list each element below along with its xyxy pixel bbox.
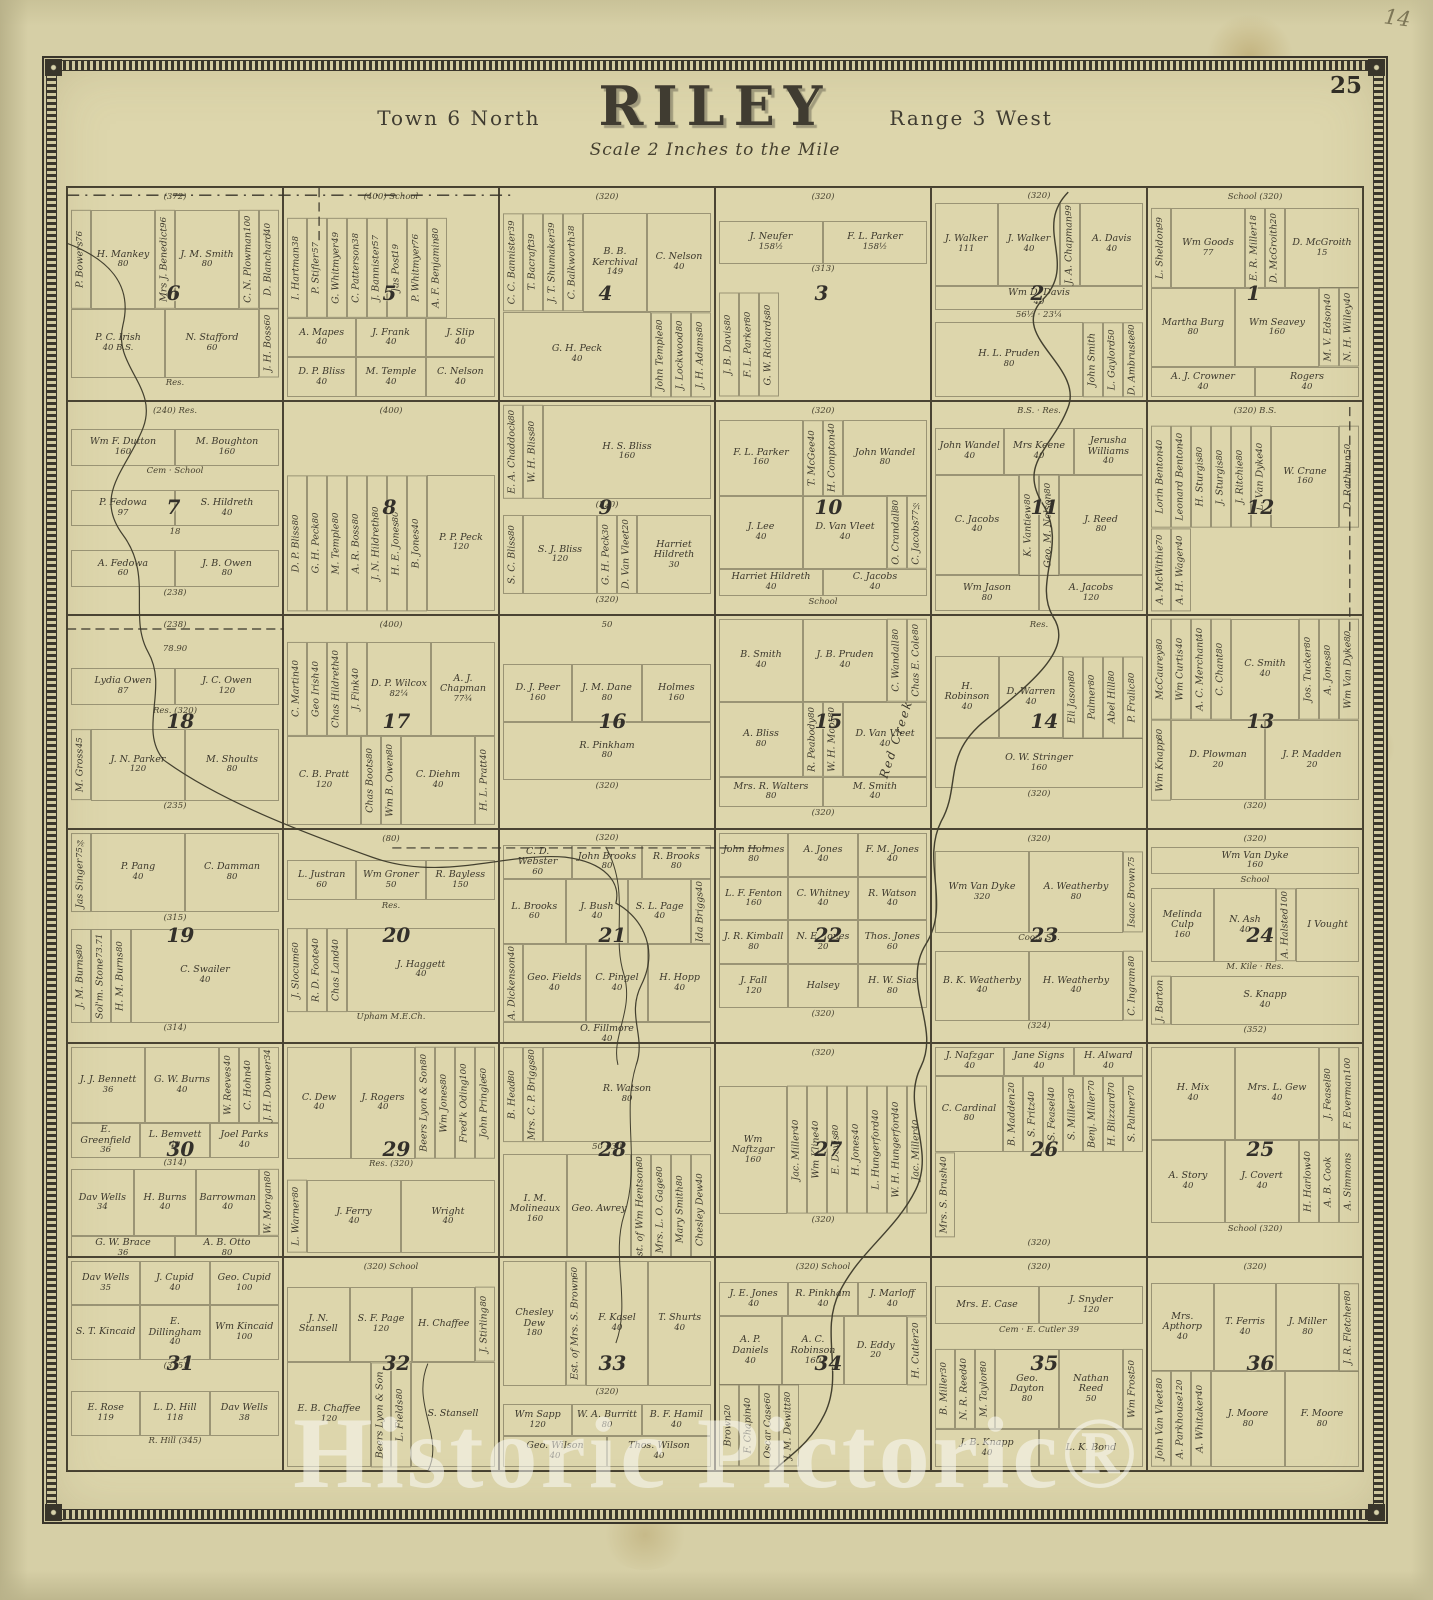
section-number: 22: [814, 923, 842, 947]
section-24: 24(320)Wm Van Dyke160SchoolMelinda Culp1…: [1147, 829, 1363, 1043]
section-5: 5(400) SchoolI. Hartman38P. Stifler57G. …: [283, 187, 499, 401]
parcel-label: J. Marloff40: [858, 1282, 927, 1316]
parcel-label: H. W. Sias80: [858, 964, 927, 1008]
section-number: 20: [382, 923, 410, 947]
parcel-label: D. Van Vleet20: [617, 515, 637, 594]
parcel-label: D. J. Peer160: [503, 664, 572, 722]
parcel-label: M. V. Edson40: [1319, 288, 1339, 367]
parcel-label: Chesley Dew180: [503, 1261, 566, 1386]
parcel-label: C. Damman80: [185, 833, 279, 912]
parcel-label: A. Story40: [1151, 1140, 1225, 1223]
parcel-label: J. M. Burns80: [71, 929, 91, 1023]
parcel-label: P. C. Irish40 B.S.: [71, 309, 165, 378]
map-annotation: (320): [935, 1261, 1143, 1274]
parcel-label: Wm Goods77: [1171, 208, 1245, 288]
parcel-label: C. Swailer40: [131, 929, 279, 1023]
map-annotation: (320): [1151, 833, 1359, 846]
section-number: 15: [814, 709, 842, 733]
map-annotation: 56½ · 23¼: [935, 310, 1143, 322]
map-annotation: 18: [71, 526, 279, 539]
parcel-label: E. B. Chaffee120: [287, 1362, 371, 1467]
parcel-label: A. J. Crowner40: [1151, 367, 1255, 397]
section-26: 26J. Nafzgar40Jane Signs40H. Alward40C. …: [931, 1043, 1147, 1257]
parcel-label: M. Smith40: [823, 777, 927, 807]
parcel-label: F. M. Jones40: [858, 833, 927, 877]
parcel-label: A. H. Wager40: [1171, 528, 1191, 611]
parcel-label: Lydia Owen87: [71, 668, 175, 705]
parcel-label: Est. of Mrs. S. Brown60: [566, 1261, 586, 1386]
section-2: 2(320)J. Walker111J. Walker40J. A. Chapm…: [931, 187, 1147, 401]
parcel-label: J. Fall120: [719, 964, 788, 1008]
parcel-label: D. P. Bliss80: [287, 475, 307, 611]
map-annotation: (320): [503, 780, 711, 793]
map-annotation: (400): [287, 619, 495, 632]
parcel-label: B. Madden20: [1003, 1076, 1023, 1152]
section-4: 4(320)C. C. Bannister39T. Bacraft39J. T.…: [499, 187, 715, 401]
parcel-label: G. H. Peck80: [307, 475, 327, 611]
parcel-label: Joel Parks40: [210, 1123, 279, 1158]
parcel-label: Geo. Awrey: [567, 1154, 631, 1257]
parcel-label: O. Crandall80: [887, 496, 907, 569]
parcel-label: Sol'm. Stone73.71: [91, 929, 111, 1023]
parcel-label: K. Vantiew80: [1019, 475, 1039, 576]
parcel-label: C. Cardinal80: [935, 1076, 1003, 1152]
section-number: 24: [1246, 923, 1274, 947]
parcel-label: C. Nelson40: [647, 213, 711, 311]
map-annotation: (238): [71, 619, 279, 632]
section-14: 14Res.H. Robinson40D. Warren40Eli Jason8…: [931, 615, 1147, 829]
parcel-label: Rogers40: [1255, 367, 1359, 397]
parcel-label: Leonard Benton40: [1171, 426, 1191, 528]
section-1: 1School (320)L. Sheldon99Wm Goods77E. R.…: [1147, 187, 1363, 401]
parcel-label: E. Greenfield36: [71, 1123, 140, 1158]
parcel-label: C. Jacobs40: [823, 569, 927, 596]
map-annotation: (320): [935, 191, 1143, 203]
parcel-label: Dav Wells38: [210, 1391, 279, 1435]
section-12: 12(320) B.S.Lorin Benton40Leonard Benton…: [1147, 401, 1363, 615]
parcel-label: C. Nelson40: [426, 357, 495, 397]
parcel-label: J. Sturgis80: [1211, 426, 1231, 528]
parcel-label: A. Jones80: [1319, 619, 1339, 720]
section-number: 12: [1246, 495, 1274, 519]
parcel-label: M. Taylor80: [975, 1349, 995, 1429]
parcel-label: Beers Lyon & Son80: [415, 1047, 435, 1159]
section-number: 1: [1246, 281, 1260, 305]
parcel-label: Thos. Jones60: [858, 920, 927, 964]
section-number: 17: [382, 709, 410, 733]
parcel-label: S. Hildreth40: [175, 490, 279, 527]
parcel-label: L. Hungerford40: [867, 1086, 887, 1214]
map-annotation: (324): [935, 1021, 1143, 1034]
parcel-label: Wm B. Owen80: [381, 736, 401, 825]
parcel-label: Harriet Hildreth30: [637, 515, 711, 594]
parcel-label: F. L. Parker80: [739, 293, 759, 397]
map-annotation: (320): [719, 807, 927, 820]
parcel-label: R. D. Foote40: [307, 928, 327, 1012]
parcel-label: A. Whitaker40: [1191, 1371, 1211, 1467]
parcel-label: S. L. Page40: [628, 879, 691, 944]
parcel-label: P. P. Peck120: [427, 475, 495, 611]
scanned-atlas-page: { "page": { "corner_note": "14", "page_n…: [0, 0, 1433, 1600]
parcel-label: H. L. Pruden80: [935, 322, 1083, 397]
section-number: 35: [1030, 1351, 1058, 1375]
parcel-label: Wm Frost50: [1123, 1349, 1143, 1429]
parcel-label: C. Smith40: [1231, 619, 1299, 720]
parcel-label: D. Blanchard40: [259, 210, 279, 309]
map-annotation: (320): [719, 1008, 927, 1021]
parcel-label: S. Palmer70: [1123, 1076, 1143, 1152]
parcel-label: J. Slip40: [426, 318, 495, 358]
parcel-label: J. R. Kimball80: [719, 920, 788, 964]
parcel-label: Chas Land40: [327, 928, 347, 1012]
parcel-label: N. H. Willey40: [1339, 288, 1359, 367]
map-annotation: (400): [287, 405, 495, 418]
section-7: 7(240) Res.Wm F. Dutton160M. Boughton160…: [67, 401, 283, 615]
parcel-label: Beers Lyon & Son: [371, 1362, 391, 1467]
parcel-label: M. Temple40: [356, 357, 425, 397]
section-number: 25: [1246, 1137, 1274, 1161]
parcel-label: Wm Jones80: [435, 1047, 455, 1159]
parcel-label: S. Miller30: [1063, 1076, 1083, 1152]
section-23: 23(320)Wm Van Dyke320A. Weatherby80Isaac…: [931, 829, 1147, 1043]
parcel-label: C. Patterson38: [347, 218, 367, 318]
map-annotation: (320) B.S.: [1151, 405, 1359, 418]
parcel-label: L. Brooks60: [503, 879, 566, 944]
parcel-label: Wm Knapp80: [1151, 720, 1171, 801]
parcel-label: D. McGroith15: [1285, 208, 1359, 288]
parcel-label: C. Chant80: [1211, 619, 1231, 720]
parcel-label: J. T. Shumaker39: [543, 213, 563, 311]
parcel-label: G. W. Burns40: [145, 1047, 219, 1123]
section-number: 13: [1246, 709, 1274, 733]
section-9: 9E. A. Chaddock80W. H. Bliss80H. S. Blis…: [499, 401, 715, 615]
parcel-label: W. H. Hungerford40: [887, 1086, 907, 1214]
parcel-label: J. Neufer158½: [719, 221, 823, 264]
map-annotation: Res.: [71, 378, 279, 391]
parcel-label: Benj. Miller70: [1083, 1076, 1103, 1152]
parcel-label: Wright40: [401, 1180, 495, 1253]
map-annotation: (240) Res.: [71, 405, 279, 418]
parcel-label: A. C. Merchant40: [1191, 619, 1211, 720]
parcel-label: Mrs Keene40: [1004, 428, 1073, 474]
border-corner-rosette: [1368, 1504, 1385, 1521]
parcel-label: Wm Naftzgar160: [719, 1086, 787, 1214]
section-3: 3(320)J. Neufer158½F. L. Parker158½(313)…: [715, 187, 931, 401]
parcel-label: Geo. Wilson40: [503, 1436, 607, 1467]
parcel-label: Abel Hill80: [1103, 656, 1123, 738]
map-annotation: (314): [71, 1023, 279, 1036]
parcel-label: A. B. Cook: [1319, 1140, 1339, 1223]
parcel-label: B. F. Hamil40: [642, 1404, 711, 1435]
parcel-label: J. B. Owen80: [175, 550, 279, 587]
map-title: RILEY: [599, 74, 832, 138]
parcel-label: I Vought: [1296, 888, 1359, 961]
section-number: 11: [1030, 495, 1058, 519]
parcel-label: H. Robinson40: [935, 656, 999, 738]
parcel-label: John Wandel80: [843, 420, 927, 496]
parcel-label: B. B. Kerchival149: [583, 213, 647, 311]
parcel-label: Mrs. S. Brush40: [935, 1152, 955, 1237]
parcel-label: J. E. Jones40: [719, 1282, 788, 1316]
parcel-label: A. J. Chapman77¾: [431, 642, 495, 736]
parcel-label: John Smith: [1083, 322, 1103, 397]
section-16: 1650D. J. Peer160J. M. Dane80Holmes160R.…: [499, 615, 715, 829]
parcel-label: P. Fralic80: [1123, 656, 1143, 738]
parcel-label: H. Compton40: [823, 420, 843, 496]
section-number: 2: [1030, 281, 1044, 305]
section-29: 29C. Dew40J. Rogers40Beers Lyon & Son80W…: [283, 1043, 499, 1257]
parcel-label: R. Brooks80: [642, 845, 711, 880]
map-annotation: (320): [935, 833, 1143, 846]
parcel-label: J. B. Knapp40: [935, 1429, 1039, 1467]
parcel-label: C. Hohn40: [239, 1047, 259, 1123]
parcel-label: G. H. Peck30: [597, 515, 617, 594]
parcel-label: L. D. Hill118: [140, 1391, 209, 1435]
section-25: 25H. Mix40Mrs. L. Gew40J. Feasel80F. Eve…: [1147, 1043, 1363, 1257]
parcel-label: Thos. Wilson40: [607, 1436, 711, 1467]
parcel-label: J. Cupid40: [140, 1261, 209, 1305]
section-number: 19: [166, 923, 194, 947]
section-number: 9: [598, 495, 612, 519]
section-20: 20(80)L. Justran60Wm Groner50R. Bayless1…: [283, 829, 499, 1043]
section-17: 17(400)C. Martin40Geo Irish40Chas Hildre…: [283, 615, 499, 829]
parcel-label: J. Reed80: [1059, 475, 1143, 576]
parcel-label: L. Sheldon99: [1151, 208, 1171, 288]
parcel-label: B. K. Weatherby40: [935, 951, 1029, 1021]
section-28: 28B. Head80Mrs. C. P. Briggs80R. Watson8…: [499, 1043, 715, 1257]
parcel-label: J. H. Boss60: [259, 309, 279, 378]
section-6: 6(372)P. Bowers76H. Mankey80Mrs J. Bened…: [67, 187, 283, 401]
section-31: 31Dav Wells35J. Cupid40Geo. Cupid100S. T…: [67, 1257, 283, 1471]
parcel-label: F. Everman100: [1339, 1047, 1359, 1140]
parcel-label: A. Dickenson40: [503, 944, 523, 1022]
parcel-label: John Brooks80: [572, 845, 641, 880]
parcel-label: C. C. Bannister39: [503, 213, 523, 311]
parcel-label: A. McWithie70: [1151, 528, 1171, 611]
township-map: 6(372)P. Bowers76H. Mankey80Mrs J. Bened…: [66, 186, 1364, 1472]
section-32: 32(320) SchoolJ. N. StansellS. F. Page12…: [283, 1257, 499, 1471]
map-annotation: (320): [719, 1214, 927, 1227]
parcel-label: L. K. Bond: [1039, 1429, 1143, 1467]
parcel-label: S. T. Kincaid: [71, 1305, 140, 1360]
parcel-label: J. Nafzgar40: [935, 1047, 1004, 1076]
parcel-label: G. W. Richards80: [759, 293, 779, 397]
parcel-label: T. McGee40: [803, 420, 823, 496]
section-number: 28: [598, 1137, 626, 1161]
section-number: 14: [1030, 709, 1058, 733]
parcel-label: J. B. Pruden40: [803, 619, 887, 702]
map-annotation: School (320): [1151, 1223, 1359, 1236]
parcel-label: R. Pinkham40: [788, 1282, 857, 1316]
parcel-label: L. Fields80: [391, 1362, 411, 1467]
parcel-label: J. H. Downer34: [259, 1047, 279, 1123]
parcel-label: H. Mankey80: [91, 210, 155, 309]
parcel-label: A. Jones40: [788, 833, 857, 877]
parcel-label: A. Bliss80: [719, 702, 803, 777]
parcel-label: Geo. Cupid100: [210, 1261, 279, 1305]
parcel-label: John Pringle60: [475, 1047, 495, 1159]
parcel-label: H. M. Burns80: [111, 929, 131, 1023]
parcel-label: H. Weatherby40: [1029, 951, 1123, 1021]
parcel-label: A. Mapes40: [287, 318, 356, 358]
parcel-label: Jerusha Williams40: [1074, 428, 1143, 474]
parcel-label: Oscar Case60: [759, 1385, 779, 1467]
parcel-label: John Wandel40: [935, 428, 1004, 474]
parcel-label: Holmes160: [642, 664, 711, 722]
border-ornament-right: [1373, 71, 1384, 1509]
parcel-label: W. A. Burritt80: [572, 1404, 641, 1435]
parcel-label: J. H. Adams80: [691, 312, 711, 397]
parcel-label: A. B. Otto80: [175, 1236, 279, 1257]
border-corner-rosette: [45, 1504, 62, 1521]
section-36: 36(320)Mrs. Apthorp40T. Ferris40J. Mille…: [1147, 1257, 1363, 1471]
parcel-label: John Temple80: [651, 312, 671, 397]
parcel-label: E. A. Chaddock80: [503, 405, 523, 499]
parcel-label: J. Walker111: [935, 203, 998, 286]
border-ornament-top: [57, 60, 1373, 71]
border-ornament-bottom: [57, 1509, 1373, 1520]
parcel-label: C. B. Pratt120: [287, 736, 361, 825]
section-35: 35(320)Mrs. E. CaseJ. Snyder120Cem · E. …: [931, 1257, 1147, 1471]
parcel-label: C. Pingel40: [586, 944, 649, 1022]
parcel-label: P. Bowers76: [71, 210, 91, 309]
parcel-label: Mrs. L. O. Gage80: [651, 1154, 671, 1257]
section-number: 36: [1246, 1351, 1274, 1375]
parcel-label: N. R. Reed40: [955, 1349, 975, 1429]
map-annotation: 50: [503, 619, 711, 632]
parcel-label: Mrs. E. Case: [935, 1286, 1039, 1324]
parcel-label: P. Pang40: [91, 833, 185, 912]
map-annotation: (320): [719, 405, 927, 418]
section-number: 7: [166, 495, 180, 519]
map-annotation: School (320): [1151, 191, 1359, 204]
parcel-label: L. Justran60: [287, 860, 356, 900]
parcel-label: J. Miller80: [1276, 1283, 1339, 1371]
parcel-label: Martha Burg80: [1151, 288, 1235, 367]
parcel-label: J. Walker40: [998, 203, 1061, 286]
parcel-label: Mary Smith80: [671, 1154, 691, 1257]
parcel-label: H. Mix40: [1151, 1047, 1235, 1140]
parcel-label: S. C. Bliss80: [503, 515, 523, 594]
parcel-label: J. M. Dewitt80: [779, 1385, 799, 1467]
map-annotation: (320): [503, 833, 711, 845]
parcel-label: H. L. Pratt40: [475, 736, 495, 825]
parcel-label: C. N. Plowman100: [239, 210, 259, 309]
parcel-label: R. Watson80: [543, 1047, 711, 1142]
parcel-label: Dav Wells34: [71, 1169, 134, 1236]
parcel-label: D. P. Bliss40: [287, 357, 356, 397]
parcel-label: Chesley Dew40: [691, 1154, 711, 1257]
parcel-label: Mrs. C. P. Briggs80: [523, 1047, 543, 1142]
section-number: 4: [598, 281, 612, 305]
section-19: 19Jas Singer75¾P. Pang40C. Damman80(315)…: [67, 829, 283, 1043]
parcel-label: P. Stifler57: [307, 218, 327, 318]
section-number: 10: [814, 495, 842, 519]
parcel-label: O. W. Stringer160: [935, 738, 1143, 788]
parcel-label: R. Watson40: [858, 877, 927, 921]
parcel-label: John Holmes80: [719, 833, 788, 877]
parcel-label: Wm Sapp120: [503, 1404, 572, 1435]
parcel-label: B. Smith40: [719, 619, 803, 702]
parcel-label: Jos. Tucker80: [1299, 619, 1319, 720]
map-annotation: School: [1151, 874, 1359, 887]
parcel-label: Mrs. Apthorp40: [1151, 1283, 1214, 1371]
parcel-label: J. Barton: [1151, 976, 1171, 1025]
section-number: 3: [814, 281, 828, 305]
parcel-label: Jas Singer75¾: [71, 833, 91, 912]
section-33: 33Chesley Dew180Est. of Mrs. S. Brown60F…: [499, 1257, 715, 1471]
section-number: 16: [598, 709, 626, 733]
map-annotation: (320): [503, 191, 711, 204]
parcel-label: H. Harlow40: [1299, 1140, 1319, 1223]
parcel-label: Wm Curtis40: [1171, 619, 1191, 720]
parcel-label: H. Alward40: [1074, 1047, 1143, 1076]
map-frame: 25 Town 6 North RILEY Range 3 West Scale…: [42, 56, 1388, 1524]
section-8: 8(400)D. P. Bliss80G. H. Peck80M. Temple…: [283, 401, 499, 615]
section-number: 29: [382, 1137, 410, 1161]
parcel-label: P. Fedowa97: [71, 490, 175, 527]
section-number: 5: [382, 281, 396, 305]
parcel-label: B. Head80: [503, 1047, 523, 1142]
map-annotation: Res.: [935, 619, 1143, 632]
parcel-label: Jane Signs40: [1004, 1047, 1073, 1076]
parcel-label: J. Lee40: [719, 496, 803, 569]
parcel-label: C. Whitney40: [788, 877, 857, 921]
parcel-label: Est. of Wm Hentson80: [631, 1154, 651, 1257]
parcel-label: S. J. Bliss120: [523, 515, 597, 594]
section-27: 27(320)Wm Naftzgar160Jac. Miller40Wm Kli…: [715, 1043, 931, 1257]
parcel-label: E. Rose119: [71, 1391, 140, 1435]
map-annotation: (238): [71, 587, 279, 600]
parcel-label: I. Hartman38: [287, 218, 307, 318]
parcel-label: F. L. Parker160: [719, 420, 803, 496]
map-annotation: (320): [935, 788, 1143, 801]
parcel-label: Ida Briggs40: [691, 879, 711, 944]
parcel-label: Wm Jason80: [935, 575, 1039, 611]
parcel-label: W. Reeves40: [219, 1047, 239, 1123]
map-annotation: 78.90: [71, 643, 279, 656]
section-number: 18: [166, 709, 194, 733]
parcel-label: J. C. Owen120: [175, 668, 279, 705]
parcel-label: Chas E. Cole80: [907, 619, 927, 702]
parcel-label: C. Diehm40: [401, 736, 475, 825]
map-annotation: School: [719, 596, 927, 609]
section-34: 34(320) SchoolJ. E. Jones40R. Pinkham40J…: [715, 1257, 931, 1471]
parcel-label: C. Ingram80: [1123, 951, 1143, 1021]
parcel-label: H. Cutler20: [907, 1316, 927, 1385]
map-annotation: (320): [719, 191, 927, 204]
section-number: 26: [1030, 1137, 1058, 1161]
parcel-label: Chas Hildreth40: [327, 642, 347, 736]
map-annotation: (320): [503, 1386, 711, 1399]
parcel-label: H. S. Bliss160: [543, 405, 711, 499]
map-annotation: (372): [71, 191, 279, 204]
parcel-label: A. Halsted100: [1276, 888, 1296, 961]
section-number: 31: [166, 1351, 194, 1375]
scale-label: Scale 2 Inches to the Mile: [44, 140, 1386, 160]
parcel-label: J. J. Bennett36: [71, 1047, 145, 1123]
parcel-label: J. N. Parker120: [91, 729, 185, 800]
parcel-label: D. Ambruste80: [1123, 322, 1143, 397]
parcel-label: Nathan Reed50: [1059, 1349, 1123, 1429]
parcel-label: T. Bacraft39: [523, 213, 543, 311]
parcel-label: M. Shoults80: [185, 729, 279, 800]
parcel-label: B. Jones40: [407, 475, 427, 611]
map-annotation: (400) School: [287, 191, 495, 204]
parcel-label: J. M. Smith80: [175, 210, 239, 309]
map-annotation: Cem · E. Cutler 39: [935, 1324, 1143, 1337]
parcel-label: Jac. Miller40: [907, 1086, 927, 1214]
